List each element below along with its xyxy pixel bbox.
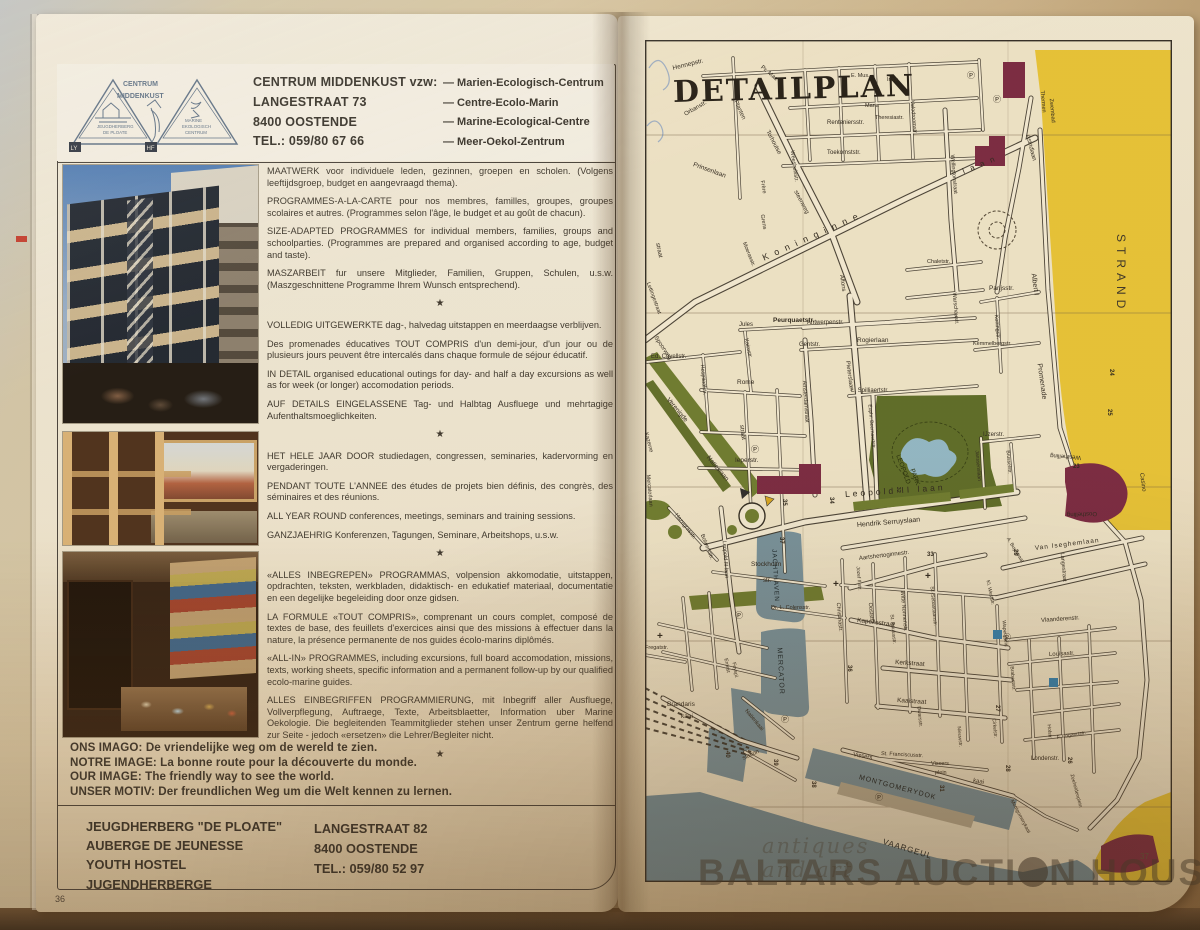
alt-name-fr: — Centre-Ecolo-Marin <box>443 94 604 114</box>
paragraph: GANZJAEHRIG Konferenzen, Tagungen, Semin… <box>267 530 613 542</box>
hostel-city: 8400 OOSTENDE <box>314 839 428 859</box>
alt-name-nl: — Marien-Ecologisch-Centrum <box>443 74 604 94</box>
org-name: CENTRUM MIDDENKUST vzw: <box>253 73 437 93</box>
logo-text-centrum: CENTRUM <box>123 81 158 88</box>
header-box: CENTRUM MIDDENKUST JEUGDHERBERG DE PLOAT… <box>57 64 614 161</box>
motto-block: ONS IMAGO: De vriendelijke weg om de wer… <box>70 741 610 799</box>
hostel-name-fr: AUBERGE DE JEUNESSE <box>86 836 282 855</box>
footer-divider <box>58 805 615 806</box>
logo-chip-left: LY <box>71 146 78 152</box>
map-drawing <box>645 40 1172 882</box>
right-page-map: DETAILPLANSTRANDHennepstr.PlantenPr. Mac… <box>618 16 1194 912</box>
paragraph: Des promenades éducatives TOUT COMPRIS d… <box>267 339 613 362</box>
logo-gull-icon <box>191 102 201 118</box>
star-separator: ★ <box>267 429 613 442</box>
paragraph: «ALLES INBEGREPEN» PROGRAMMAS, volpensio… <box>267 570 613 605</box>
photo-bunk-room <box>63 432 258 545</box>
star-separator: ★ <box>267 298 613 311</box>
alt-name-de: — Meer-Oekol-Zentrum <box>443 133 604 153</box>
hostel-name-en: YOUTH HOSTEL <box>86 855 282 874</box>
hostel-name-de: JUGENDHERBERGE <box>86 875 282 894</box>
motto-de: UNSER MOTIV: Der freundlichen Weg um die… <box>70 785 610 800</box>
logo-text-right3: CENTRUM <box>185 130 207 135</box>
org-city: 8400 OOSTENDE <box>253 113 437 133</box>
alt-name-en: — Marine-Ecological-Centre <box>443 113 604 133</box>
paragraph: MASZARBEIT fur unsere Mitglieder, Famili… <box>267 268 613 291</box>
photo-exhibit-room <box>63 552 258 737</box>
paragraph: VOLLEDIG UITGEWERKTE dag-, halvedag uits… <box>267 320 613 332</box>
hostel-name-nl: JEUGDHERBERG "DE PLOATE" <box>86 817 282 836</box>
paragraph: PENDANT TOUTE L'ANNEE des études de proj… <box>267 481 613 504</box>
city-map-detailplan: DETAILPLANSTRANDHennepstr.PlantenPr. Mac… <box>645 40 1172 882</box>
paragraph: MAATWERK voor individuele leden, gezinne… <box>267 166 613 189</box>
hostel-names-block: JEUGDHERBERG "DE PLOATE" AUBERGE DE JEUN… <box>86 817 282 894</box>
org-phone: TEL.: 059/80 67 66 <box>253 132 437 152</box>
logo-chip-right: HF <box>147 146 155 152</box>
org-alt-names: — Marien-Ecologisch-Centrum — Centre-Eco… <box>443 74 604 152</box>
hostel-street: LANGESTRAAT 82 <box>314 819 428 839</box>
magazine-photo: CENTRUM MIDDENKUST JEUGDHERBERG DE PLOAT… <box>0 0 1200 930</box>
logo-text-left1: JEUGDHERBERG <box>97 124 134 129</box>
paragraph: IN DETAIL organised educational outings … <box>267 369 613 392</box>
paragraph: ALLES EINBEGRIFFEN PROGRAMMIERUNG, mit I… <box>267 695 613 741</box>
org-street: LANGESTRAAT 73 <box>253 93 437 113</box>
mercator-basin <box>761 628 809 717</box>
body-text-column: MAATWERK voor individuele leden, gezinne… <box>267 166 613 770</box>
paragraph: SIZE-ADAPTED PROGRAMMES for individual m… <box>267 226 613 261</box>
logo-text-left2: DE PLOATE <box>103 130 127 135</box>
left-page: CENTRUM MIDDENKUST JEUGDHERBERG DE PLOAT… <box>36 14 618 912</box>
motto-fr: NOTRE IMAGE: La bonne route pour la déco… <box>70 756 610 771</box>
paragraph: HET HELE JAAR DOOR studiedagen, congress… <box>267 451 613 474</box>
hostel-address-block: LANGESTRAAT 82 8400 OOSTENDE TEL.: 059/8… <box>314 819 428 878</box>
centrum-middenkust-logo: CENTRUM MIDDENKUST JEUGDHERBERG DE PLOAT… <box>65 70 245 156</box>
org-address-block: CENTRUM MIDDENKUST vzw: LANGESTRAAT 73 8… <box>253 73 437 152</box>
star-separator: ★ <box>267 548 613 561</box>
paragraph: LA FORMULE «TOUT COMPRIS», comprenant un… <box>267 612 613 647</box>
page-number-right: 37 <box>1140 852 1149 861</box>
paragraph: PROGRAMMES-A-LA-CARTE pour nos membres, … <box>267 196 613 219</box>
red-bookmark-tab <box>16 236 27 242</box>
motto-en: OUR IMAGE: The friendly way to see the w… <box>70 770 610 785</box>
header-divider <box>58 162 615 163</box>
logo-text-right2: EKOLOGISCH <box>182 124 211 129</box>
logo-text-middenkust: MIDDENKUST <box>117 93 164 100</box>
photo-hostel-building <box>63 165 258 423</box>
page-number-left: 36 <box>55 894 65 904</box>
hostel-phone: TEL.: 059/80 52 97 <box>314 859 428 879</box>
logo-house-icon <box>95 103 131 122</box>
paragraph: «ALL-IN» PROGRAMMES, including excursion… <box>267 653 613 688</box>
paragraph: ALL YEAR ROUND conferences, meetings, se… <box>267 511 613 523</box>
page-gutter-shadow <box>592 12 650 912</box>
paragraph: AUF DETAILS EINGELASSENE Tag- und Halbta… <box>267 399 613 422</box>
motto-nl: ONS IMAGO: De vriendelijke weg om de wer… <box>70 741 610 756</box>
logo-text-right1: MARINE <box>185 118 202 123</box>
